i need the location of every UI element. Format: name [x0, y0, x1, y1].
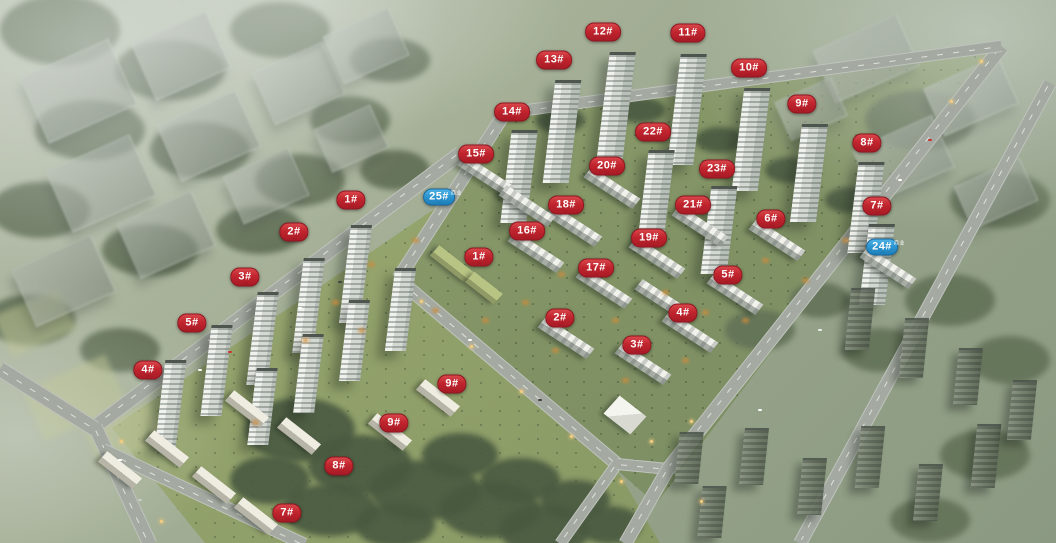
autumn-tree: [482, 318, 489, 323]
car: [338, 281, 342, 283]
car: [928, 139, 932, 141]
tree-cluster: [970, 336, 1050, 384]
future-tower: [739, 428, 769, 485]
autumn-tree: [802, 278, 809, 283]
future-tower: [697, 486, 726, 538]
building-label-2: 2#: [545, 309, 574, 328]
building-label-4: 4#: [668, 304, 697, 323]
car: [228, 351, 232, 353]
building-label-19: 19#: [631, 229, 667, 248]
car: [468, 339, 472, 341]
forest-cluster: [355, 503, 435, 543]
street-light: [520, 390, 523, 393]
future-tower: [674, 432, 703, 484]
building-label-10: 10#: [731, 59, 767, 78]
building-label-12: 12#: [585, 23, 621, 42]
building-label-5: 5#: [713, 266, 742, 285]
building-label-9: 9#: [437, 375, 466, 394]
building-label-6: 6#: [756, 210, 785, 229]
building-label-1: 1#: [336, 191, 365, 210]
building-label-20: 20#: [589, 157, 625, 176]
street-light: [420, 300, 423, 303]
car: [818, 329, 822, 331]
building-label-9: 9#: [787, 95, 816, 114]
building-label-subtext: 商业: [451, 192, 457, 197]
site-plan-rendering: 12#11#13#10#9#14#22#8#15#20#23#25#商业1#18…: [0, 0, 1056, 543]
building-label-7: 7#: [862, 197, 891, 216]
building-label-2: 2#: [279, 223, 308, 242]
autumn-tree: [368, 262, 375, 267]
building-label-4: 4#: [133, 361, 162, 380]
building-label-24: 24#商业: [866, 239, 898, 256]
autumn-tree: [612, 318, 619, 323]
building-label-18: 18#: [548, 196, 584, 215]
car: [118, 459, 122, 461]
street-light: [700, 500, 703, 503]
car: [758, 409, 762, 411]
street-light: [120, 440, 123, 443]
autumn-tree: [432, 308, 439, 313]
car: [298, 307, 302, 309]
building-label-8: 8#: [852, 134, 881, 153]
building-label-21: 21#: [675, 196, 711, 215]
autumn-tree: [252, 420, 259, 425]
future-tower: [855, 426, 886, 488]
street-light: [470, 345, 473, 348]
autumn-tree: [412, 238, 419, 243]
building-label-11: 11#: [670, 24, 705, 43]
street-light: [160, 520, 163, 523]
car: [538, 399, 542, 401]
building-label-22: 22#: [635, 123, 671, 142]
building-label-14: 14#: [494, 103, 530, 122]
autumn-tree: [762, 258, 769, 263]
building-label-13: 13#: [536, 51, 572, 70]
building-label-15: 15#: [458, 145, 494, 164]
building-label-3: 3#: [622, 336, 651, 355]
building-label-9: 9#: [379, 414, 408, 433]
autumn-tree: [842, 238, 849, 243]
building-label-8: 8#: [324, 457, 353, 476]
autumn-tree: [662, 290, 669, 295]
autumn-tree: [558, 272, 565, 277]
future-tower: [1007, 380, 1037, 440]
building-label-7: 7#: [272, 504, 301, 523]
autumn-tree: [358, 328, 365, 333]
building-label-16: 16#: [509, 222, 545, 241]
autumn-tree: [742, 318, 749, 323]
car: [138, 499, 142, 501]
autumn-tree: [332, 300, 339, 305]
future-tower: [899, 318, 929, 378]
street-light: [980, 60, 983, 63]
autumn-tree: [522, 300, 529, 305]
autumn-tree: [682, 358, 689, 363]
autumn-tree: [702, 310, 709, 315]
building-label-25: 25#商业: [423, 189, 455, 206]
autumn-tree: [302, 338, 309, 343]
building-label-subtext: 商业: [894, 242, 900, 247]
building-label-17: 17#: [578, 259, 614, 278]
street-light: [690, 420, 693, 423]
car: [198, 369, 202, 371]
car: [868, 229, 872, 231]
building-label-1: 1#: [464, 248, 493, 267]
autumn-tree: [552, 348, 559, 353]
street-light: [570, 435, 573, 438]
future-tower: [953, 348, 983, 405]
street-light: [650, 440, 653, 443]
street-light: [950, 100, 953, 103]
autumn-tree: [622, 378, 629, 383]
building-label-23: 23#: [699, 160, 735, 179]
street-light: [620, 480, 623, 483]
building-label-5: 5#: [177, 314, 206, 333]
building-label-3: 3#: [230, 268, 259, 287]
car: [898, 179, 902, 181]
